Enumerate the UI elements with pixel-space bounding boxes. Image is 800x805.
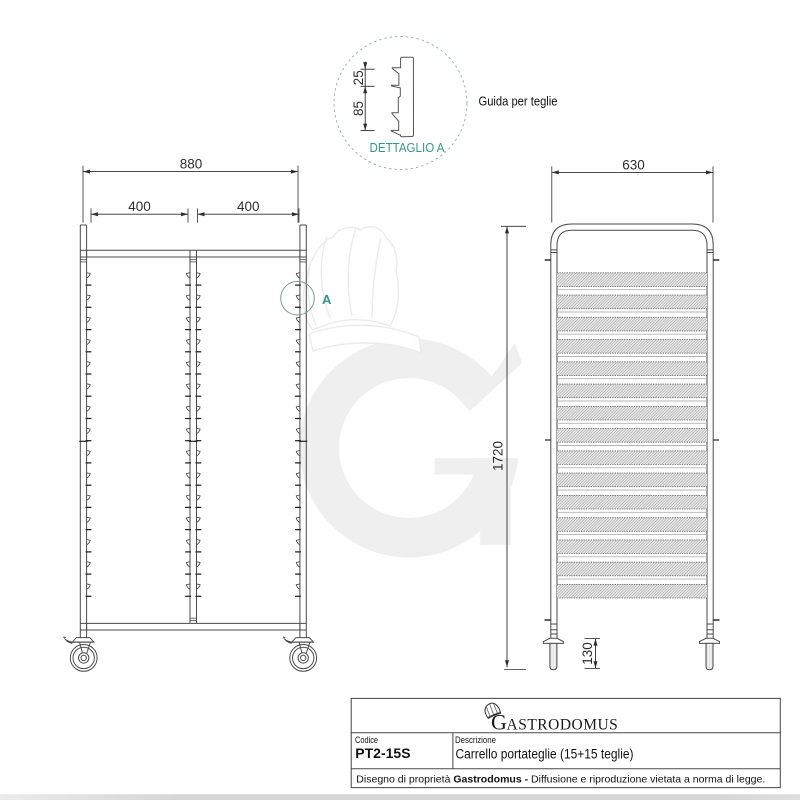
svg-text:400: 400 <box>128 199 151 214</box>
svg-text:Descrizione: Descrizione <box>455 734 496 745</box>
svg-text:Disegno di proprietà Gastrodom: Disegno di proprietà Gastrodomus - Diffu… <box>356 774 765 786</box>
svg-text:130: 130 <box>580 642 595 665</box>
svg-text:ASTRODOMUS: ASTRODOMUS <box>507 716 619 733</box>
svg-text:1720: 1720 <box>491 441 506 471</box>
svg-text:Guida per teglie: Guida per teglie <box>479 95 558 109</box>
svg-text:630: 630 <box>622 157 645 172</box>
svg-text:Carrello portateglie (15+15 te: Carrello portateglie (15+15 teglie) <box>456 747 634 762</box>
svg-text:Codice: Codice <box>355 734 378 745</box>
svg-text:25: 25 <box>351 70 366 85</box>
svg-text:85: 85 <box>351 101 366 116</box>
svg-text:DETTAGLIO A: DETTAGLIO A <box>370 140 445 155</box>
svg-text:880: 880 <box>180 157 203 172</box>
svg-text:G: G <box>491 709 507 734</box>
svg-text:400: 400 <box>237 199 260 214</box>
svg-text:PT2-15S: PT2-15S <box>355 745 410 761</box>
svg-text:A: A <box>322 292 332 307</box>
